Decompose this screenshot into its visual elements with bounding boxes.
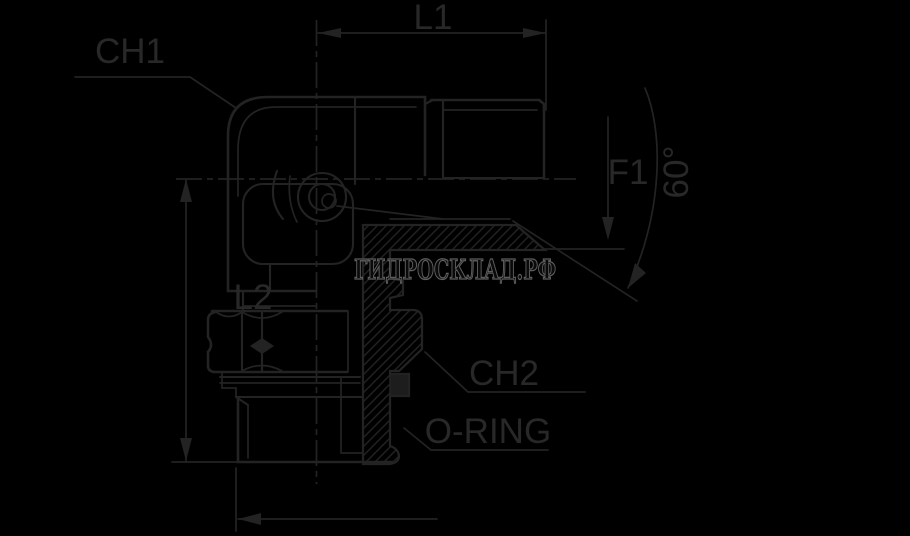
bottom-arrow-left <box>238 513 261 525</box>
hex-corner-diamond <box>250 338 274 354</box>
l1-arrow-right <box>523 28 546 38</box>
label-ch1: CH1 <box>75 32 236 108</box>
drawing-canvas: L1 CH1 <box>0 0 910 536</box>
l1-label: L1 <box>414 0 453 37</box>
dimension-l2: L2 <box>172 179 272 462</box>
f1-label: F1 <box>608 153 649 192</box>
technical-drawing: L1 CH1 <box>0 0 910 536</box>
l2-label: L2 <box>234 278 273 317</box>
hex-nut-front <box>208 311 347 372</box>
seal-ring-section <box>390 374 409 396</box>
l2-arrow-bottom <box>180 438 192 461</box>
l2-arrow-top <box>180 179 192 202</box>
dimension-l1: L1 <box>318 0 546 110</box>
ch2-label: CH2 <box>469 354 539 393</box>
watermark: ГИДРОСКЛАД.РФ <box>354 255 556 286</box>
oring-label: O-RING <box>425 412 551 451</box>
f1-arrowhead <box>602 217 614 240</box>
angle-arrowhead <box>628 263 646 288</box>
ch1-label: CH1 <box>95 32 165 71</box>
top-port-thread <box>425 100 544 178</box>
label-oring: O-RING <box>404 412 551 451</box>
dimension-f1: F1 <box>602 117 648 240</box>
angle-label: 60° <box>657 146 696 199</box>
label-ch2: CH2 <box>425 352 585 393</box>
l1-arrow-left <box>318 28 341 38</box>
dimension-bottom <box>236 468 437 531</box>
